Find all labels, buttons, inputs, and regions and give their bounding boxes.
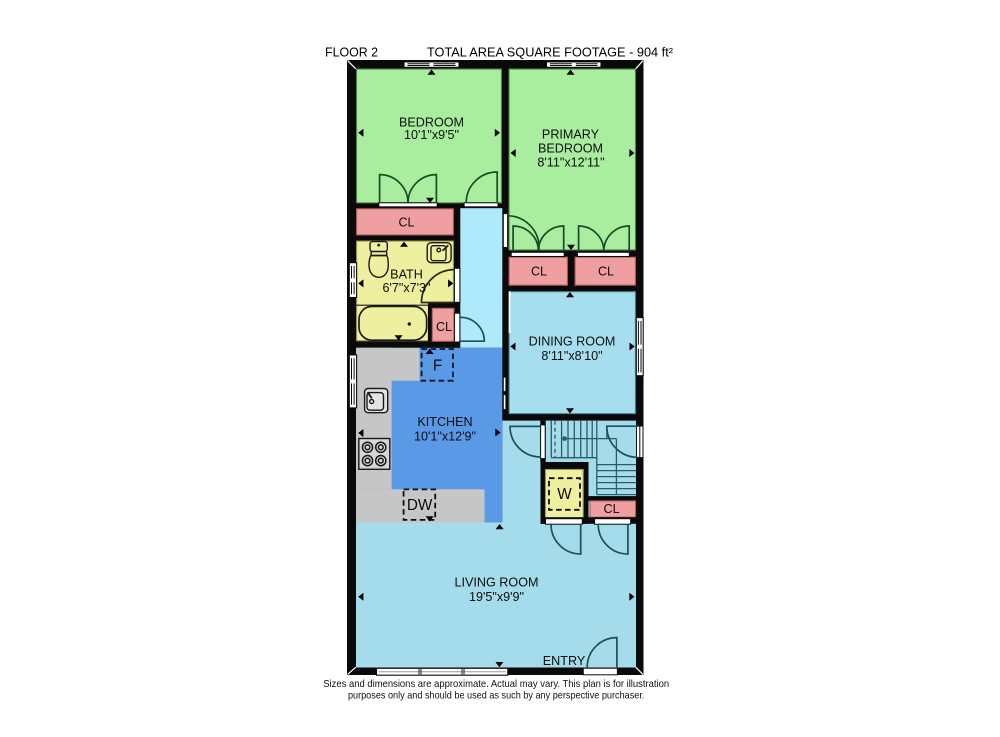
svg-text:FLOOR 2: FLOOR 2 [325,45,378,59]
svg-text:F: F [433,358,442,375]
svg-text:ENTRY: ENTRY [543,654,586,668]
svg-text:CL: CL [436,320,452,334]
svg-text:PRIMARY: PRIMARY [542,127,600,141]
svg-text:W: W [557,486,572,503]
svg-text:BEDROOM: BEDROOM [399,115,464,129]
svg-text:10'1"x12'9": 10'1"x12'9" [414,430,476,444]
svg-text:8'11"x12'11": 8'11"x12'11" [537,155,604,169]
svg-text:CL: CL [398,216,414,230]
svg-text:10'1"x9'5": 10'1"x9'5" [404,128,459,142]
svg-text:LIVING ROOM: LIVING ROOM [455,576,539,590]
svg-text:Sizes and dimensions are appro: Sizes and dimensions are approximate. Ac… [323,678,669,690]
svg-text:DINING ROOM: DINING ROOM [529,334,616,348]
svg-text:DW: DW [407,497,433,514]
svg-text:CL: CL [531,265,547,279]
svg-text:KITCHEN: KITCHEN [417,415,472,429]
svg-text:8'11"x8'10": 8'11"x8'10" [541,349,602,363]
svg-text:6'7"x7'3": 6'7"x7'3" [382,281,430,295]
svg-text:CL: CL [598,265,614,279]
svg-text:purposes only and should be us: purposes only and should be used as such… [348,690,645,702]
svg-text:CL: CL [604,502,620,516]
svg-text:19'5"x9'9": 19'5"x9'9" [469,590,524,604]
svg-text:TOTAL AREA SQUARE FOOTAGE - 90: TOTAL AREA SQUARE FOOTAGE - 904 ft² [427,45,673,59]
svg-text:BEDROOM: BEDROOM [538,142,603,156]
svg-text:BATH: BATH [390,268,423,282]
